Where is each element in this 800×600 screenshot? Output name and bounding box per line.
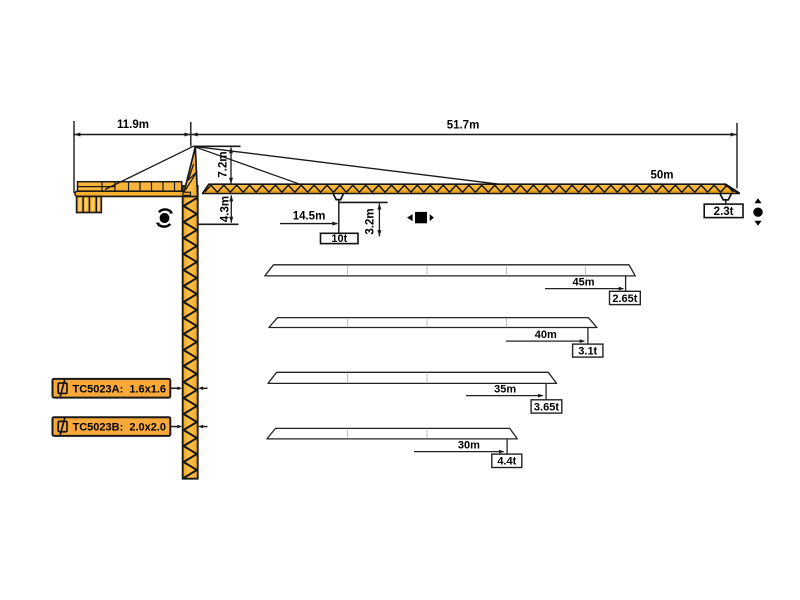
svg-text:11.9m: 11.9m <box>117 119 149 131</box>
svg-text:TC5023A: 1.6x1.6: TC5023A: 1.6x1.6 <box>73 383 167 395</box>
svg-text:10t: 10t <box>331 233 347 245</box>
svg-text:2.65t: 2.65t <box>612 293 637 305</box>
svg-text:35m: 35m <box>494 384 516 396</box>
svg-text:4.3m: 4.3m <box>220 196 232 222</box>
svg-text:7.2m: 7.2m <box>218 151 230 177</box>
svg-text:51.7m: 51.7m <box>447 120 480 132</box>
svg-text:40m: 40m <box>535 329 557 341</box>
svg-text:3.1t: 3.1t <box>578 346 597 358</box>
svg-text:14.5m: 14.5m <box>293 211 326 223</box>
svg-text:45m: 45m <box>572 277 594 289</box>
svg-text:2.3t: 2.3t <box>714 206 734 218</box>
svg-text:30m: 30m <box>458 439 480 451</box>
svg-text:TC5023B: 2.0x2.0: TC5023B: 2.0x2.0 <box>73 422 167 434</box>
svg-text:50m: 50m <box>650 170 673 182</box>
svg-text:3.65t: 3.65t <box>534 401 559 413</box>
svg-text:3.2m: 3.2m <box>365 208 377 234</box>
svg-text:4.4t: 4.4t <box>497 456 516 468</box>
